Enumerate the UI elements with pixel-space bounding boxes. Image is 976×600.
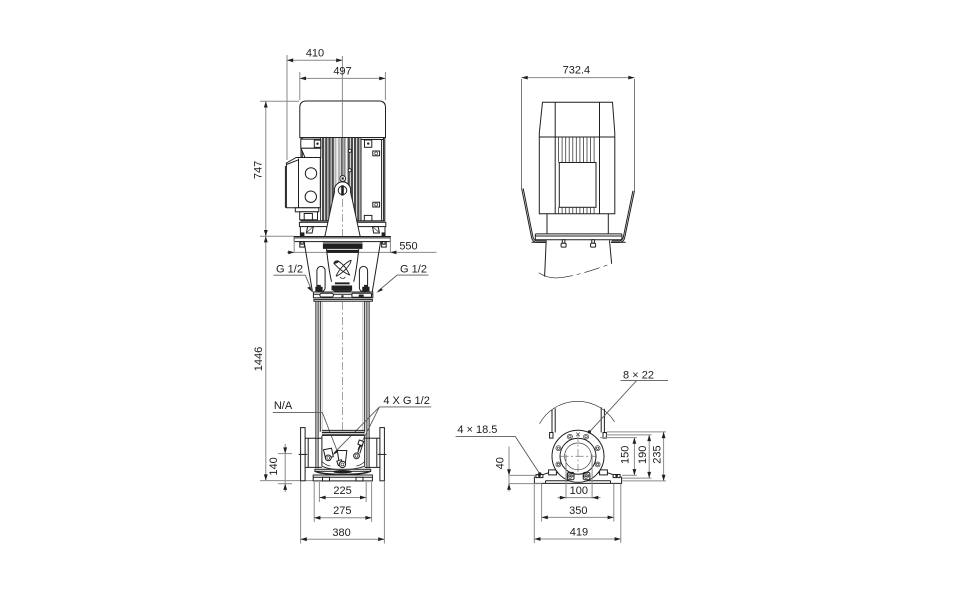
svg-text:8 × 22: 8 × 22 bbox=[623, 370, 654, 382]
svg-text:275: 275 bbox=[333, 505, 351, 517]
svg-text:190: 190 bbox=[637, 446, 649, 464]
svg-text:G 1/2: G 1/2 bbox=[276, 264, 303, 276]
svg-text:350: 350 bbox=[569, 505, 587, 517]
svg-text:4 X G 1/2: 4 X G 1/2 bbox=[383, 395, 429, 407]
svg-text:747: 747 bbox=[253, 161, 265, 179]
svg-text:140: 140 bbox=[268, 457, 280, 475]
svg-text:G 1/2: G 1/2 bbox=[400, 263, 427, 275]
svg-text:497: 497 bbox=[333, 66, 351, 78]
svg-text:1446: 1446 bbox=[253, 347, 265, 371]
svg-text:N/A: N/A bbox=[274, 400, 293, 412]
svg-text:150: 150 bbox=[620, 446, 632, 464]
svg-text:550: 550 bbox=[399, 240, 417, 252]
svg-text:4 × 18.5: 4 × 18.5 bbox=[457, 424, 497, 436]
svg-text:235: 235 bbox=[652, 445, 664, 463]
svg-text:100: 100 bbox=[570, 485, 588, 497]
svg-text:410: 410 bbox=[306, 48, 324, 60]
svg-text:380: 380 bbox=[332, 527, 350, 539]
svg-text:40: 40 bbox=[494, 457, 506, 469]
svg-text:732.4: 732.4 bbox=[563, 65, 591, 77]
svg-text:225: 225 bbox=[333, 485, 351, 497]
svg-text:419: 419 bbox=[570, 527, 588, 539]
